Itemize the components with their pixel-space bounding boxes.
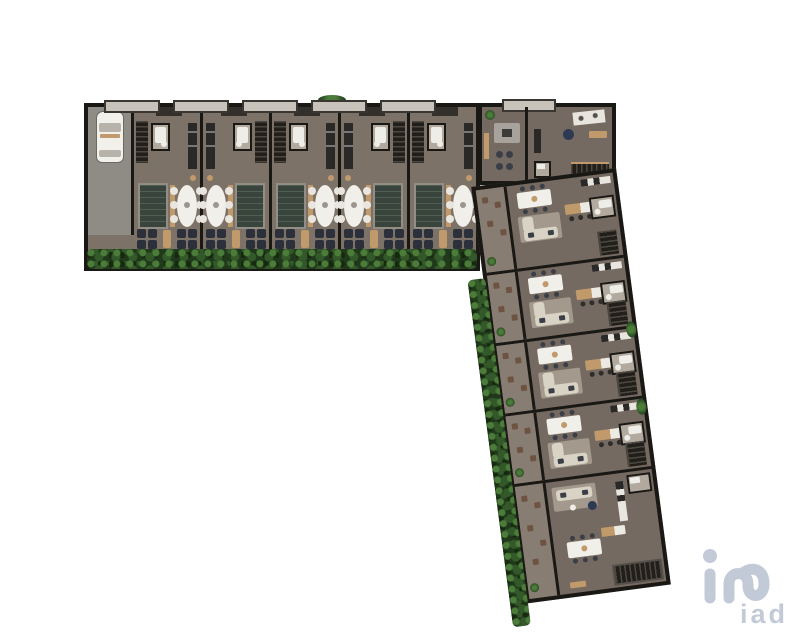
dining-chair [506,163,513,170]
sun-lounger [344,240,353,249]
plunge-pool [235,183,265,229]
dining-chair [583,557,589,563]
staircase [597,230,619,256]
toilet [615,364,622,371]
sun-lounger [275,229,284,238]
unit-interior [341,107,407,267]
wood-lounger [232,230,240,248]
lounger-group [246,229,266,249]
side-terrace [496,342,536,413]
sun-lounger [355,240,364,249]
dining-chair [496,163,503,170]
plant [530,583,540,593]
cooktop [502,129,512,137]
table-centerpiece [551,351,558,358]
pouf [587,500,597,510]
dining-chair [199,215,207,223]
dining-chair [543,365,549,371]
staircase [136,121,148,163]
staircase [614,561,662,584]
terrace-loungers [137,227,197,251]
side-terrace [487,272,527,343]
cushion [548,230,555,236]
lounger-group [384,229,404,249]
dining-chair [541,270,547,276]
apartment-unit-end [515,469,667,599]
side-terrace [505,413,545,484]
dining-chair [308,215,316,223]
iad-logo: iad [696,544,792,630]
dining-chair [560,339,566,345]
wood-lounger [370,230,378,248]
staircase [255,121,267,163]
toilet [437,141,443,147]
side-table [570,580,587,588]
iad-wordmark: iad [740,599,788,630]
terrace-stool [487,221,494,228]
island-stool [580,301,586,307]
car-rear-window [99,150,121,157]
bathtub [619,355,633,365]
unit-interior [410,107,476,267]
sun-lounger [246,240,255,249]
plunge-pool [138,183,168,229]
oval-dining-table [206,185,226,227]
terrace-stool [507,376,514,383]
kitchen-counter [464,123,473,169]
toilet [594,208,601,215]
plunge-pool [276,183,306,229]
dining-chair [363,187,371,195]
dining-table [516,189,552,209]
dining-chair [549,412,555,418]
sun-lounger [355,229,364,238]
terrace-stool [527,525,534,532]
oval-dining-table [315,185,335,227]
cushion [568,385,575,391]
kitchen-stool [345,175,351,181]
row-house-unit [134,107,200,267]
dining-chair [563,362,569,368]
island-stool [599,442,605,448]
sun-lounger [326,229,335,238]
sun-lounger [217,229,226,238]
dining-chair [170,201,178,209]
dining-chair [544,293,550,299]
bathroom [289,123,308,151]
bathroom [589,195,617,220]
dining-chair [199,201,207,209]
sun-lounger [413,240,422,249]
sun-lounger [137,240,146,249]
staircase [625,441,647,467]
plant [496,327,506,337]
terrace-loungers [413,227,473,251]
entry-porch [242,100,298,113]
sun-lounger [315,240,324,249]
dining-chair [496,151,503,158]
bathtub [598,199,612,209]
terrace-stool [506,287,513,294]
plant [485,110,495,120]
dining-chair [554,292,560,298]
sun-lounger [217,240,226,249]
dining-chair [592,556,598,562]
kitchen-counter [188,123,197,169]
sun-lounger [257,240,266,249]
dining-chair [533,208,539,214]
unit-interior [272,107,338,267]
sun-lounger [257,229,266,238]
dining-chair [170,215,178,223]
sun-lounger [453,229,462,238]
dining-chair [308,201,316,209]
table-centerpiece [460,202,466,208]
dining-chair [562,434,568,440]
wood-lounger [163,230,171,248]
kitchen-stool [466,175,472,181]
staircase [412,121,424,163]
table-centerpiece [322,202,328,208]
dining-chair [539,183,545,189]
desk [572,109,605,125]
terrace-stool [498,306,505,313]
table-centerpiece [561,422,568,429]
sun-lounger [188,240,197,249]
sun-lounger [246,229,255,238]
sun-lounger [424,229,433,238]
lounger-group [275,229,295,249]
table-centerpiece [581,545,588,552]
shower [630,477,641,484]
terrace-loungers [275,227,335,251]
staircase [393,121,405,163]
sun-lounger [464,240,473,249]
iad-symbol-icon [696,544,792,604]
dining-chair [551,269,557,275]
kitchen-counter [326,123,335,169]
dining-chair [308,187,316,195]
dining-chair [446,187,454,195]
oval-dining-table [453,185,473,227]
plant [505,397,515,407]
dining-chair [225,215,233,223]
dining-chair [363,215,371,223]
table-centerpiece [531,196,538,203]
dining-chair [337,215,345,223]
bathroom [233,123,252,151]
lounger-group [413,229,433,249]
toilet [605,294,612,301]
dining-chair [446,201,454,209]
dining-chair [570,536,576,542]
dining-chair [337,201,345,209]
staircase [616,370,638,396]
terrace-stool [534,502,541,509]
terrace-stool [494,201,501,208]
sun-lounger [344,229,353,238]
terrace-loungers [206,227,266,251]
oval-dining-table [344,185,364,227]
entry-porch [311,100,367,113]
sun-lounger [453,240,462,249]
kitchen-island [594,428,621,441]
staircase [606,300,628,326]
dining-table [546,415,582,435]
row-house-unit [407,107,476,267]
dining-chair [225,187,233,195]
wood-lounger [301,230,309,248]
terrace-stool [500,229,507,236]
dining-chair [580,534,586,540]
toilet [299,141,305,147]
dining-chair [199,187,207,195]
sun-lounger [206,240,215,249]
lounger-group [315,229,335,249]
sink [537,164,545,169]
cushion [577,456,584,462]
terrace-stool [502,353,509,360]
lounger-group [137,229,157,249]
toilet [161,141,167,147]
kitchen-counter [615,481,628,522]
sun-lounger [148,240,157,249]
dining-chair [530,185,536,191]
sun-lounger [395,240,404,249]
wing-top [84,103,480,271]
dining-chair [553,363,559,369]
lounger-group [177,229,197,249]
kitchen-island [494,123,520,143]
bathtub [609,284,623,294]
sun-lounger [286,229,295,238]
kitchen-island [601,525,626,537]
lounger-group [453,229,473,249]
cushion [582,489,589,495]
kitchen-island [585,357,612,370]
sun-lounger [148,229,157,238]
dining-chair [589,533,595,539]
sun-lounger [177,240,186,249]
top-units-row [134,107,476,267]
corner-room-kitchen [482,107,528,181]
dining-table [566,538,602,558]
terrace-stool [521,385,528,392]
wing-right [471,168,671,603]
kitchen-counter [580,176,611,187]
toilet [624,434,631,441]
bathroom [371,123,390,151]
sun-lounger [275,240,284,249]
sideboard [589,131,607,138]
cushion [557,458,564,464]
terrace-stool [511,423,518,430]
sun-lounger [315,229,324,238]
sun-lounger [424,240,433,249]
table-centerpiece [542,281,549,288]
dining-table [528,274,564,294]
dining-chair [506,151,513,158]
oval-dining-table [177,185,197,227]
sun-lounger [464,229,473,238]
terrace-stool [540,539,547,546]
staircase [274,121,286,163]
hedge-row-bottom [87,249,477,269]
entry-porch [104,100,160,113]
kitchen-counter [344,123,353,169]
table-centerpiece [213,202,219,208]
table-centerpiece [184,202,190,208]
terrace-stool [515,357,522,364]
dining-chair [559,411,565,417]
car-dashboard [100,134,120,138]
kitchen-counter [591,261,622,272]
kitchen-counter [534,129,541,153]
sun-lounger [413,229,422,238]
lounger-group [344,229,364,249]
terrace-loungers [344,227,404,251]
sun-lounger [286,240,295,249]
dining-chair [531,271,537,277]
dining-chair [170,187,178,195]
dining-chair [337,187,345,195]
toilet [236,141,242,147]
unit-interior [134,107,200,267]
island-stool [608,441,614,447]
dining-chair [540,342,546,348]
row-house-unit [269,107,338,267]
pouf [563,129,574,140]
sun-lounger [206,229,215,238]
row-house-unit [200,107,269,267]
kitchen-island [564,202,591,215]
sun-lounger [384,229,393,238]
bathroom [151,123,170,151]
bathroom [427,123,446,151]
kitchen-island [576,287,603,300]
car-windshield [99,123,121,132]
sun-lounger [384,240,393,249]
terrace-stool [482,197,489,204]
cushion [548,388,555,394]
dining-table [537,344,573,364]
kitchen-stool [328,175,334,181]
dining-chair [534,294,540,300]
plunge-pool [373,183,403,229]
bathtub [628,425,642,435]
island-stool [598,370,604,376]
sun-lounger [395,229,404,238]
bathroom [626,472,652,494]
cushion [560,492,567,498]
cushion [539,318,546,324]
terrace-stool [532,558,539,565]
entry-porch [380,100,436,113]
plunge-pool [414,183,444,229]
dining-chair [446,215,454,223]
side-terrace [476,186,518,272]
row-house-unit [338,107,407,267]
kitchen-stool [190,175,196,181]
dining-chair [573,558,579,564]
dining-chair [363,201,371,209]
sun-lounger [177,229,186,238]
terrace-stool [517,447,524,454]
plant [514,468,524,478]
floorplan-canvas: iad [0,0,800,640]
sideboard [484,133,489,159]
cushion [559,315,566,321]
island-stool [569,216,575,222]
sun-lounger [137,229,146,238]
kitchen-counter [206,123,215,169]
dining-chair [520,186,526,192]
kitchen-stool [207,175,213,181]
terrace-stool [493,282,500,289]
wood-lounger [439,230,447,248]
dining-chair [569,410,575,416]
bathroom [534,161,551,178]
parked-car [97,112,123,162]
dining-chair [552,435,558,441]
dining-chair [225,201,233,209]
island-stool [589,372,595,378]
terrace-stool [521,495,528,502]
entry-porch [173,100,229,113]
dining-chair [572,432,578,438]
terrace-stool [511,314,518,321]
terrace-stool [530,455,537,462]
unit-interior [203,107,269,267]
dining-chair [523,209,529,215]
island-stool [578,215,584,221]
dining-chair [550,340,556,346]
lounger-group [206,229,226,249]
coffee-table [570,504,577,511]
cushion [528,232,535,238]
terrace-stool [524,427,531,434]
island-stool [589,300,595,306]
table-centerpiece [351,202,357,208]
dining-chair [542,206,548,212]
driveway [88,107,134,235]
sun-lounger [326,240,335,249]
plant [487,256,497,266]
toilet [374,141,380,147]
sun-lounger [188,229,197,238]
